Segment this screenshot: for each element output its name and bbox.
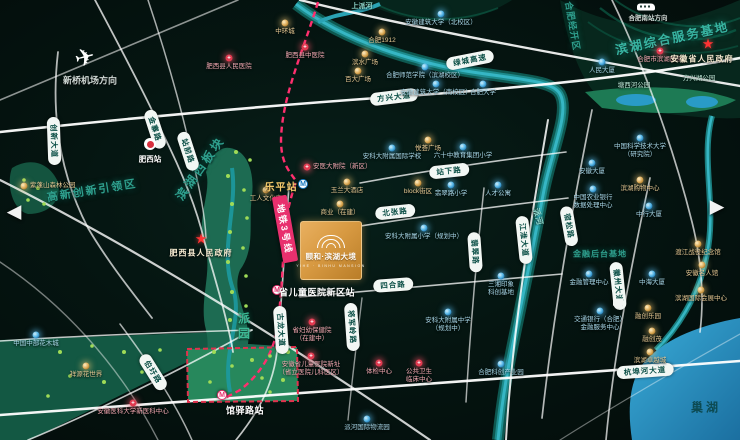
poi-dot-icon [448,182,455,189]
project-subtitle: YIHE · BINHU MANSION [296,264,365,268]
poi-dot-icon [364,416,371,423]
poi-dot-icon: + [302,44,309,51]
poi-label: 六十中教育集团小学 [398,152,528,160]
airplane-icon: ✈ [72,41,99,74]
poi-dot-icon [695,241,702,248]
poi-label: 融创茂 [587,336,717,344]
poi-dot-icon: + [309,319,316,326]
poi-label: 派河国际物流园 [302,424,432,432]
poi-dot-icon [480,81,487,88]
metro-station-label: 馆驿路站 [226,404,264,417]
poi-label: 中国农业银行数据处理中心 [528,194,658,209]
poi-dot-icon [645,305,652,312]
project-logo-card: 颐和·滨湖大境 YIHE · BINHU MANSION [300,221,362,280]
poi-dot-icon [460,144,467,151]
poi-dot-icon [646,203,653,210]
poi-label: 中行大厦 [584,211,714,219]
metro-station-icon: M [217,390,227,400]
water-label: 派河 [530,207,545,227]
road-label: 四合路 [373,277,413,293]
metro-station-label: 省儿童医院新区站 [279,286,355,299]
park-label: 塘西河公园 [618,79,651,89]
poi-dot-icon: + [226,55,233,62]
poi-label: 合肥科创产业园 [436,369,566,377]
poi-dot-icon [282,20,289,27]
poi-dot-icon [344,179,351,186]
poi-dot-icon [425,137,432,144]
poi-dot-icon [699,262,706,269]
poi-dot-icon [83,363,90,370]
metro-line-label: 地铁3号线 [272,195,298,264]
poi-label: 工人文化宫 [201,195,331,203]
poi-dot-icon [649,328,656,335]
poi-label: 安医大附院（新区） [313,163,372,171]
poi-label: 祥源花世界 [21,371,151,379]
poi-label: 滨水广场 [300,59,430,67]
poi-dot-icon [362,51,369,58]
district-label: 金融后台基地 [573,249,627,260]
poi-dot-icon: + [416,360,423,367]
poi-dot-icon [445,309,452,316]
poi-label: 安科大附属小学（规划中） [359,233,489,241]
poi-label: 中环城 [220,28,350,36]
rail-direction-label: 合肥南站方向 [629,12,668,22]
water-label: 上派河 [352,1,373,11]
poi-dot-icon [637,135,644,142]
poi-label: 滨湖购物中心 [575,185,705,193]
poi-label: 省妇幼保健院（在建中） [247,327,377,342]
poi-dot-icon [415,180,422,187]
poi-label: 中国科学技术大学（研究院） [575,143,705,158]
road-label: 杭埠河大道 [616,363,673,380]
poi-label: 安科大附属中学（规划中） [383,317,513,332]
poi-label: 肥西县人民医院 [164,63,294,71]
poi-label: 人民大厦 [537,67,667,75]
poi-dot-icon [33,332,40,339]
gov-star-icon: ★ [702,36,715,53]
lake-label: 巢湖 [691,399,721,416]
poi-label: 合肥师范学院（滨湖校区） [360,72,490,80]
poi-dot-icon [379,29,386,36]
poi-dot-icon [498,361,505,368]
train-icon [637,4,655,11]
district-label: 高新创新引领区 [46,175,138,205]
poi-dot-icon: + [130,400,137,407]
poi-dot-icon: + [376,360,383,367]
poi-dot-icon [495,182,502,189]
carousel-prev-button[interactable]: ◀ [7,201,22,224]
poi-label: 中国中部花木城 [0,340,101,348]
gov-label: 安徽省人民政府 [671,54,734,65]
gov-label: 肥西县人民政府 [170,248,233,259]
airport-direction-label: 新桥机场方向 [63,74,117,87]
poi-dot-icon [589,160,596,167]
carousel-next-button[interactable]: ▶ [710,196,725,219]
road-label: 绿城高速 [445,49,495,71]
road-label: 创新大道 [47,117,62,165]
poi-dot-icon [422,64,429,71]
poi-label: 安徽医科大学新医科中心 [68,408,198,416]
poi-dot-icon [438,11,445,18]
poi-dot-icon [637,177,644,184]
road-label: 江淮大道 [515,215,533,264]
map-overlay: 颐和·滨湖大境 YIHE · BINHU MANSION 高新创新引领区滨湖西板… [0,0,740,440]
metro-station-icon: M [298,179,308,189]
poi-label: 融创乐园 [583,313,713,321]
district-label: 合肥经开区 [562,0,583,52]
poi-label: 合肥大学 [418,89,548,97]
poi-label: 紫蓬山森林公园 [30,182,76,190]
railway-station-label: 肥西站 [139,154,162,165]
railway-station-icon [144,138,156,150]
poi-dot-icon [698,287,705,294]
road-label: 站下路 [429,162,470,179]
poi-dot-icon [433,81,440,88]
project-logo-icon [316,233,346,248]
poi-dot-icon [647,349,654,356]
poi-dot-icon [421,225,428,232]
poi-dot-icon [599,59,606,66]
poi-dot-icon [498,273,505,280]
poi-dot-icon: + [657,48,664,55]
poi-label: 中海大厦 [587,279,717,287]
poi-dot-icon [337,201,344,208]
park-label: 方兴湖公园 [683,72,716,82]
poi-label: 滨湖卓越城 [585,357,715,365]
location-map: 颐和·滨湖大境 YIHE · BINHU MANSION 高新创新引领区滨湖西板… [0,0,740,440]
poi-label: 安徽大厦 [527,168,657,176]
poi-dot-icon [21,183,28,190]
road-label: 宿松路 [559,205,579,246]
road-label: 站前路 [176,130,201,172]
poi-label: 安徽建筑大学（北校区） [376,19,506,27]
poi-dot-icon: + [304,164,311,171]
metro-station-label: 乐平站 [265,179,298,194]
project-title: 颐和·滨湖大境 [306,251,357,262]
poi-label: 安徽名人馆 [637,270,740,278]
poi-dot-icon [389,145,396,152]
poi-dot-icon [586,271,593,278]
poi-label: 商业（在建） [275,209,405,217]
poi-label: 滨湖国际会展中心 [636,295,740,303]
poi-label: 渡江战役纪念馆 [633,249,740,257]
poi-dot-icon: + [308,353,315,360]
poi-label: 合肥1912 [317,37,447,45]
gov-star-icon: ★ [195,231,208,248]
